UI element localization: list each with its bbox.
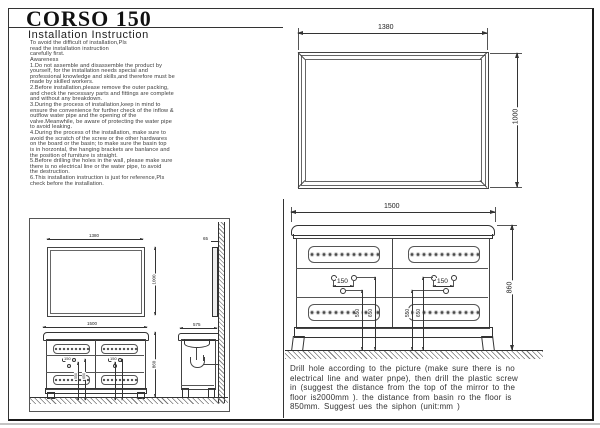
drill-note-text: Drill hole according to the picture (mak… (290, 364, 588, 412)
ov-dim-inner-label: 550 (74, 372, 78, 380)
carved-band-top-right (408, 246, 480, 263)
side-mirror (212, 247, 218, 317)
text-line: electrical line and water pnpe), then dr… (290, 374, 588, 384)
ov-carved-band (101, 375, 138, 385)
text-line: check before the installation. (30, 182, 260, 188)
ov-mirror-inner (50, 250, 142, 314)
dim-cabinet-width-line (291, 212, 495, 213)
mirror-frame-inner (305, 59, 482, 182)
ov-cabinet-width-label: 1500 (86, 321, 98, 326)
text-line: Drill hole according to the picture (mak… (290, 364, 588, 374)
ov-drill-hole (67, 364, 71, 368)
dim-right-outer (423, 277, 424, 350)
instruction-text: To avoid the difficult of installation,P… (30, 41, 260, 187)
dim-mirror-height-label: 1000 (512, 108, 519, 126)
cabinet-base-rail (294, 327, 493, 338)
dim-cabinet-width-label: 1500 (383, 203, 401, 210)
cabinet-center-divider (392, 238, 393, 327)
siphon-outlet (203, 364, 218, 365)
cabinet-leg-right (481, 336, 495, 351)
text-line: 850mm. Suggest ues the siphon (unit:mm ) (290, 402, 588, 412)
instruction-sheet: CORSO 150 Installation Instruction To av… (0, 0, 600, 428)
dim-right-inner-label: 550 (405, 308, 411, 318)
floor-hatch (285, 350, 543, 359)
dim-left-inner (362, 290, 363, 350)
dim-mirror-width-label: 1380 (377, 24, 395, 31)
dim-mirror-width-line (298, 33, 487, 34)
drill-hole (340, 288, 346, 294)
dim-left-outer (375, 277, 376, 350)
cabinet-leg-left (291, 336, 305, 351)
title-rule (9, 27, 283, 28)
ov-floor-hatch (30, 397, 228, 404)
ov-dim-outer-label: 650 (82, 372, 86, 380)
drill-hole (351, 275, 357, 281)
dim-left-outer-label: 650 (368, 308, 374, 318)
ov-mirror-thickness-label: 65 (202, 236, 209, 241)
drill-hole (451, 275, 457, 281)
ov-mirror-width-label: 1380 (88, 233, 100, 238)
panel-divider (283, 199, 284, 418)
dim-cabinet-height-label: 860 (506, 281, 513, 295)
side-basin (184, 339, 210, 348)
ov-base-rail (45, 388, 147, 394)
drill-hole (443, 288, 449, 294)
ov-hole-span-left-label: 150 (63, 356, 72, 361)
dim-hole-span-left-label: 150 (336, 278, 349, 285)
ov-carved-band (101, 344, 138, 354)
ov-drill-hole (72, 358, 76, 362)
text-line: floor is2000mm ). the distance from basi… (290, 393, 588, 403)
page-edge-shadow (0, 423, 600, 425)
dim-hole-span-right (433, 286, 453, 287)
wall-hatch (218, 222, 225, 403)
dim-right-inner (412, 290, 413, 350)
ov-cabinet-height-label: 860 (151, 360, 156, 370)
text-line: in (suggest the distance from the top of… (290, 383, 588, 393)
dim-right-outer-label: 650 (416, 308, 422, 318)
carved-band-top-left (308, 246, 380, 263)
ov-mirror-height-label: 1000 (152, 273, 157, 285)
dim-hole-span-right-label: 150 (436, 278, 449, 285)
siphon-riser (203, 355, 204, 361)
dim-left-inner-label: 550 (355, 308, 361, 318)
ov-carved-band (53, 344, 90, 354)
ov-cabinet-depth-label: 575 (192, 322, 202, 327)
dim-hole-span-left (333, 286, 353, 287)
